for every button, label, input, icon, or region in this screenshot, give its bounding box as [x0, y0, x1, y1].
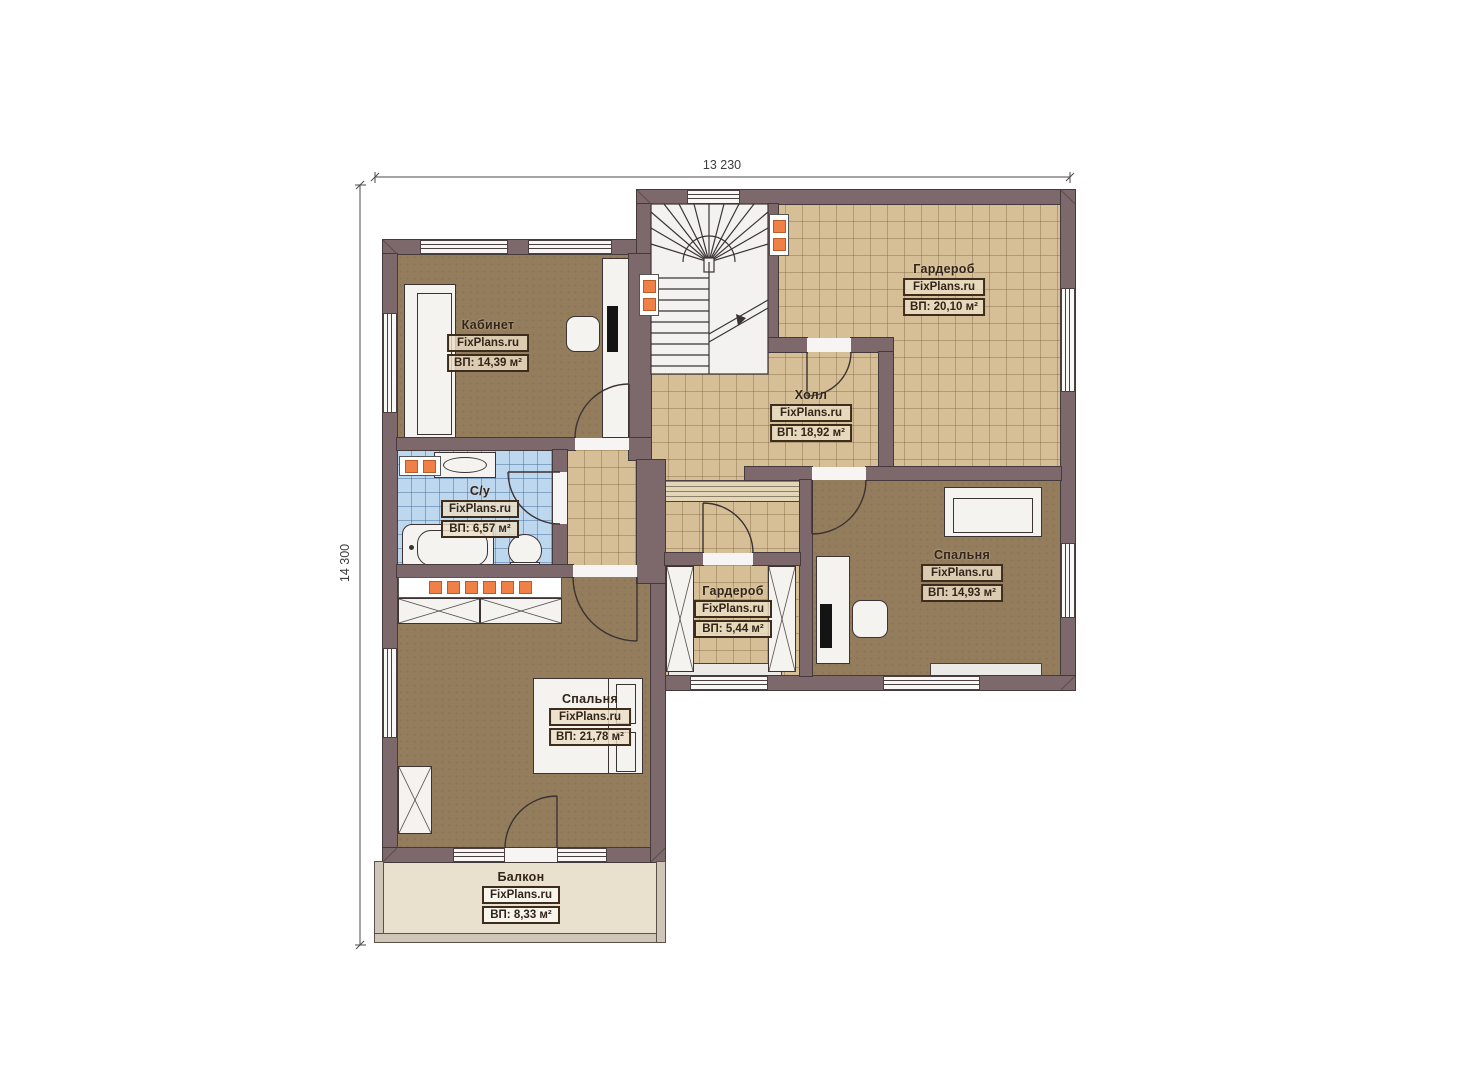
stair-steps: [651, 262, 709, 374]
builtin-closet: [665, 480, 800, 502]
window: [420, 240, 508, 254]
room-name: Спальня: [549, 692, 631, 706]
window: [528, 240, 612, 254]
room-label-bathroom: С/у FixPlans.ru ВП: 6,57 м²: [441, 484, 519, 538]
window: [383, 313, 397, 413]
room-area: ВП: 20,10 м²: [903, 298, 985, 316]
wall-segment: [745, 467, 812, 480]
window: [453, 848, 505, 862]
room-area: ВП: 21,78 м²: [549, 728, 631, 746]
watermark: FixPlans.ru: [694, 600, 772, 618]
sink: [434, 452, 496, 478]
radiator: [398, 577, 562, 598]
door-opening: [807, 338, 851, 352]
wall-wardrobe-bedroom: [800, 480, 812, 676]
wardrobe-cabinet: [398, 766, 432, 834]
floor-corridor: [567, 450, 637, 565]
balcony-parapet-left: [375, 862, 383, 942]
room-area: ВП: 6,57 м²: [441, 520, 519, 538]
room-name: Кабинет: [447, 318, 529, 332]
computer-monitor: [607, 306, 618, 352]
stair-break-line: [709, 300, 768, 342]
room-name: Холл: [770, 388, 852, 402]
window: [557, 848, 607, 862]
watermark: FixPlans.ru: [903, 278, 985, 296]
watermark: FixPlans.ru: [447, 334, 529, 352]
window: [690, 676, 768, 690]
room-label-hall: Холл FixPlans.ru ВП: 18,92 м²: [770, 388, 852, 442]
window: [383, 648, 397, 738]
door-opening: [575, 438, 629, 450]
computer-monitor: [820, 604, 832, 648]
window: [883, 676, 980, 690]
wall-segment: [629, 438, 651, 460]
wall-segment: [665, 553, 703, 565]
watermark: FixPlans.ru: [482, 886, 560, 904]
watermark: FixPlans.ru: [441, 500, 519, 518]
office-chair: [566, 316, 600, 352]
wardrobe-cabinet: [480, 598, 562, 624]
room-label-balcony: Балкон FixPlans.ru ВП: 8,33 м²: [482, 870, 560, 924]
wall-segment: [637, 204, 651, 254]
room-label-wardrobe-big: Гардероб FixPlans.ru ВП: 20,10 м²: [903, 262, 985, 316]
door-opening: [573, 565, 637, 577]
stair-direction-arrow: [736, 314, 746, 326]
wall-segment: [851, 338, 893, 352]
room-label-bedroom-right: Спальня FixPlans.ru ВП: 14,93 м²: [921, 548, 1003, 602]
wardrobe-cabinet: [666, 566, 694, 672]
sofa: [944, 487, 1042, 537]
room-label-wardrobe-small: Гардероб FixPlans.ru ВП: 5,44 м²: [694, 584, 772, 638]
wall-segment: [753, 553, 800, 565]
wall-bathroom-top: [397, 438, 575, 450]
dimension-height: 14 300: [338, 513, 352, 613]
radiator: [399, 456, 441, 476]
balcony-parapet-bottom: [375, 934, 665, 942]
radiator: [769, 214, 789, 256]
watermark: FixPlans.ru: [770, 404, 852, 422]
office-chair: [852, 600, 888, 638]
balcony-parapet-right: [657, 862, 665, 942]
window-sill: [930, 663, 1042, 676]
watermark: FixPlans.ru: [921, 564, 1003, 582]
wall-hall-wardrobe: [879, 352, 893, 467]
room-label-office: Кабинет FixPlans.ru ВП: 14,39 м²: [447, 318, 529, 372]
staircase: [651, 204, 768, 374]
wall-segment: [768, 338, 807, 352]
door-opening: [703, 553, 753, 565]
room-area: ВП: 8,33 м²: [482, 906, 560, 924]
wall-bedroom-top: [397, 565, 573, 577]
window: [1061, 543, 1075, 618]
room-area: ВП: 14,39 м²: [447, 354, 529, 372]
room-area: ВП: 18,92 м²: [770, 424, 852, 442]
watermark: FixPlans.ru: [549, 708, 631, 726]
room-name: Гардероб: [694, 584, 772, 598]
window: [687, 190, 740, 204]
floor-plan: Кабинет FixPlans.ru ВП: 14,39 м² Гардеро…: [0, 0, 1473, 1080]
door-opening: [553, 472, 567, 524]
room-name: Спальня: [921, 548, 1003, 562]
room-name: Гардероб: [903, 262, 985, 276]
room-area: ВП: 5,44 м²: [694, 620, 772, 638]
room-name: С/у: [441, 484, 519, 498]
dimension-width: 13 230: [672, 158, 772, 172]
room-label-bedroom-bottom: Спальня FixPlans.ru ВП: 21,78 м²: [549, 692, 631, 746]
wall-corridor: [637, 460, 665, 583]
wall-bedroom-right: [651, 583, 665, 862]
wardrobe-cabinet: [398, 598, 480, 624]
room-area: ВП: 14,93 м²: [921, 584, 1003, 602]
door-opening: [812, 467, 866, 480]
radiator: [639, 274, 659, 316]
window: [1061, 288, 1075, 392]
wardrobe-cabinet: [768, 566, 796, 672]
floor-hall-left: [651, 374, 768, 480]
door-opening: [505, 848, 557, 862]
stair-winder-fan: [651, 204, 768, 262]
room-name: Балкон: [482, 870, 560, 884]
wall-hall-bedroom: [866, 467, 1061, 480]
